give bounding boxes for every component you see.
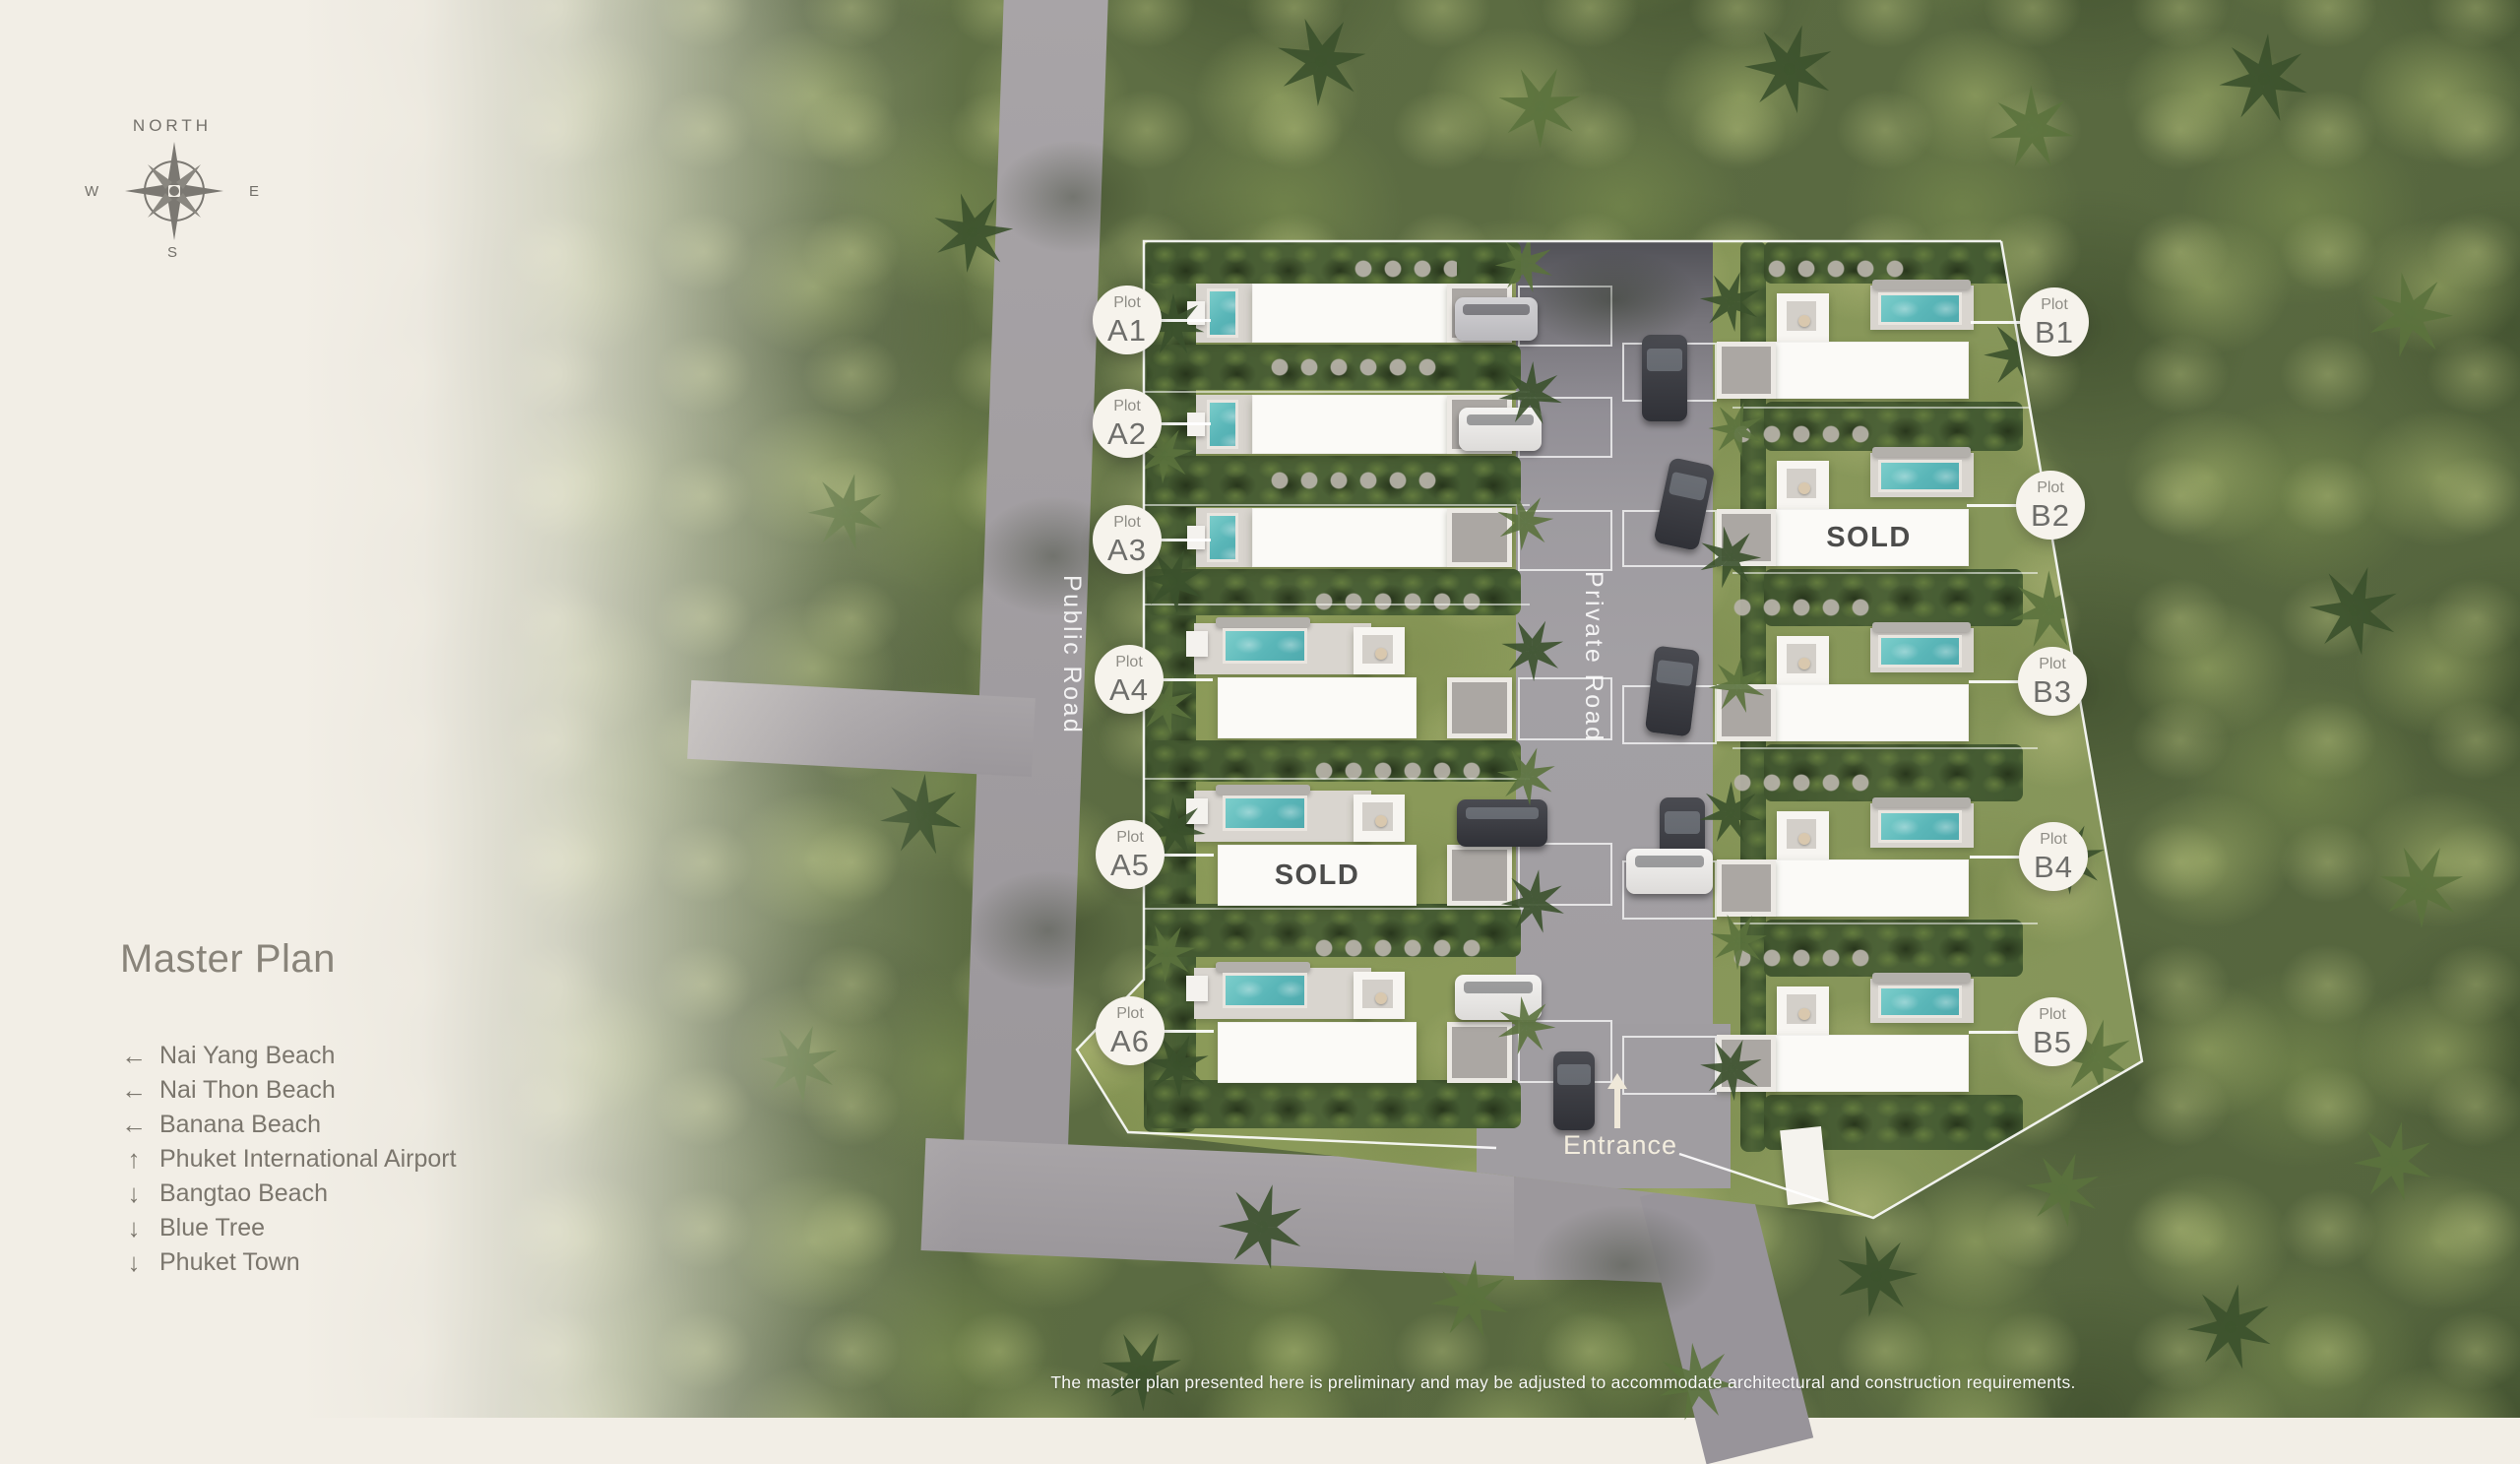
plot-kicker: Plot xyxy=(1113,295,1141,311)
plot-id: B3 xyxy=(2033,676,2072,707)
entrance-label: Entrance xyxy=(1563,1130,1677,1161)
plot-kicker: Plot xyxy=(2039,1007,2066,1023)
compass-rose: NORTH W E S xyxy=(59,116,285,261)
plot-marker-circle: Plot B4 xyxy=(2019,822,2088,891)
arrow-down-icon: ↓ xyxy=(120,1245,148,1280)
plot-id: A5 xyxy=(1110,850,1150,880)
plot-id: A2 xyxy=(1107,418,1147,449)
location-item: ← Nai Thon Beach xyxy=(120,1073,457,1108)
location-label: Bangtao Beach xyxy=(159,1177,328,1211)
arrow-left-icon: ← xyxy=(120,1073,148,1108)
compass-east-label: E xyxy=(249,183,260,200)
location-label: Nai Thon Beach xyxy=(159,1073,336,1108)
plot-marker-circle: Plot A6 xyxy=(1096,996,1165,1065)
plot-marker-circle: Plot B2 xyxy=(2016,471,2085,540)
plot-marker-circle: Plot A4 xyxy=(1095,645,1164,714)
location-label: Phuket Town xyxy=(159,1245,300,1280)
plot-kicker: Plot xyxy=(2037,480,2064,496)
compass-north-label: NORTH xyxy=(59,116,285,136)
location-label: Nai Yang Beach xyxy=(159,1039,335,1073)
marker-connector xyxy=(1160,539,1211,541)
marker-connector xyxy=(1160,319,1211,322)
plot-kicker: Plot xyxy=(1116,1006,1144,1022)
location-label: Banana Beach xyxy=(159,1108,321,1142)
plot-marker-circle: Plot A5 xyxy=(1096,820,1165,889)
plot-kicker: Plot xyxy=(1115,655,1143,670)
marker-connector xyxy=(1967,504,2018,507)
location-item: ← Nai Yang Beach xyxy=(120,1039,457,1073)
plot-id: B2 xyxy=(2031,500,2070,531)
plot-marker-circle: Plot A2 xyxy=(1093,389,1162,458)
plot-marker-circle: Plot B5 xyxy=(2018,997,2087,1066)
public-road-label: Public Road xyxy=(1057,575,1086,734)
plot-kicker: Plot xyxy=(2041,297,2068,313)
plot-id: A1 xyxy=(1107,315,1147,346)
page-title: Master Plan xyxy=(120,937,457,982)
marker-connector xyxy=(1162,678,1213,681)
compass-star-icon xyxy=(123,140,225,242)
marker-connector xyxy=(1971,321,2022,324)
plot-id: B1 xyxy=(2035,317,2074,348)
location-label: Phuket International Airport xyxy=(159,1142,457,1177)
plot-kicker: Plot xyxy=(1113,515,1141,531)
compass-south-label: S xyxy=(59,244,285,261)
plot-id: A3 xyxy=(1107,535,1147,565)
plot-id: A4 xyxy=(1109,674,1149,705)
marker-connector xyxy=(1163,1030,1214,1033)
plot-kicker: Plot xyxy=(1116,830,1144,846)
marker-connector xyxy=(1160,422,1211,425)
plot-marker-circle: Plot B3 xyxy=(2018,647,2087,716)
compass-west-label: W xyxy=(85,183,99,200)
arrow-left-icon: ← xyxy=(120,1108,148,1142)
arrow-up-icon: ↑ xyxy=(120,1142,148,1177)
info-panel: Master Plan ← Nai Yang Beach ← Nai Thon … xyxy=(120,937,457,1280)
arrow-down-icon: ↓ xyxy=(120,1177,148,1211)
location-item: ↑ Phuket International Airport xyxy=(120,1142,457,1177)
plot-kicker: Plot xyxy=(2039,657,2066,672)
location-item: ↓ Bangtao Beach xyxy=(120,1177,457,1211)
marker-connector xyxy=(1969,1031,2020,1034)
location-item: ↓ Blue Tree xyxy=(120,1211,457,1245)
plot-id: A6 xyxy=(1110,1026,1150,1056)
private-road-label: Private Road xyxy=(1579,571,1607,743)
plot-marker-circle: Plot B1 xyxy=(2020,287,2089,356)
location-item: ↓ Phuket Town xyxy=(120,1245,457,1280)
location-item: ← Banana Beach xyxy=(120,1108,457,1142)
location-label: Blue Tree xyxy=(159,1211,265,1245)
marker-connector xyxy=(1970,856,2021,859)
arrow-down-icon: ↓ xyxy=(120,1211,148,1245)
disclaimer-text: The master plan presented here is prelim… xyxy=(1050,1372,2075,1393)
entrance-arrow-icon xyxy=(1605,1073,1630,1130)
plot-id: B4 xyxy=(2034,852,2073,882)
arrow-left-icon: ← xyxy=(120,1039,148,1073)
marker-connector xyxy=(1163,854,1214,857)
plot-marker-circle: Plot A3 xyxy=(1093,505,1162,574)
plot-id: B5 xyxy=(2033,1027,2072,1057)
marker-connector xyxy=(1969,680,2020,683)
plot-kicker: Plot xyxy=(1113,399,1141,414)
plot-marker-circle: Plot A1 xyxy=(1093,286,1162,354)
plot-kicker: Plot xyxy=(2040,832,2067,848)
